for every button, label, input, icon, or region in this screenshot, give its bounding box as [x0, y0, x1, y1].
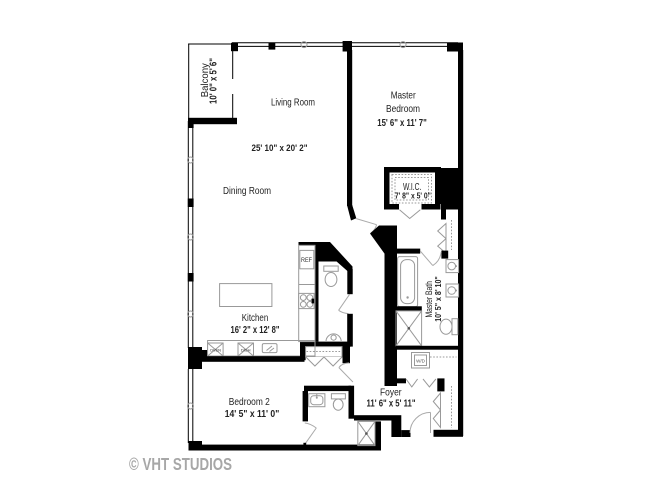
svg-text:7' 8" x 5' 0": 7' 8" x 5' 0": [395, 192, 431, 201]
svg-text:11' 6" x 5' 11": 11' 6" x 5' 11": [367, 399, 416, 410]
svg-text:10' 5" x 8' 10": 10' 5" x 8' 10": [434, 276, 443, 322]
svg-text:© VHT STUDIOS: © VHT STUDIOS: [129, 454, 232, 474]
svg-text:25' 10" x 20' 2": 25' 10" x 20' 2": [252, 143, 308, 154]
svg-text:Living Room: Living Room: [271, 97, 315, 109]
svg-text:14' 5" x 11' 0": 14' 5" x 11' 0": [225, 409, 280, 420]
svg-text:Foyer: Foyer: [380, 386, 402, 398]
svg-text:OVEN: OVEN: [210, 348, 221, 353]
svg-text:Master: Master: [391, 89, 416, 101]
svg-text:Master Bath: Master Bath: [424, 281, 434, 318]
svg-text:Bedroom: Bedroom: [386, 103, 420, 115]
svg-text:15' 6" x 11' 7": 15' 6" x 11' 7": [377, 118, 427, 129]
svg-text:Kitchen: Kitchen: [242, 312, 269, 324]
svg-text:W/D: W/D: [416, 359, 425, 364]
svg-text:10' 0" x 5' 6": 10' 0" x 5' 6": [209, 58, 220, 104]
svg-text:Dining Room: Dining Room: [223, 185, 271, 197]
svg-text:Bedroom 2: Bedroom 2: [229, 396, 270, 408]
svg-text:16' 2" x 12' 8": 16' 2" x 12' 8": [231, 325, 280, 336]
svg-text:DISH: DISH: [241, 348, 251, 353]
svg-text:REF: REF: [301, 257, 312, 264]
